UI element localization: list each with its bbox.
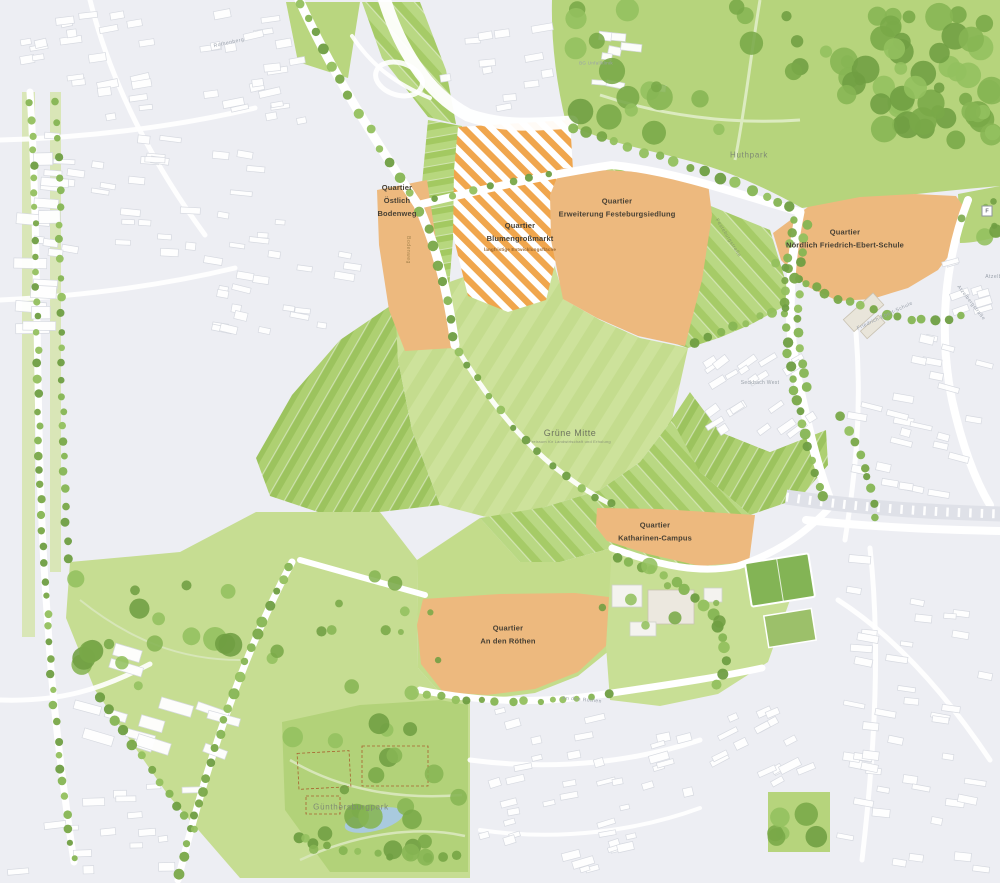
sports-field	[745, 553, 815, 606]
quarter-area-an-den-roethen[interactable]	[417, 593, 609, 695]
map-svg	[0, 0, 1000, 883]
planning-map[interactable]: Quartier Östlich Bodenweg Quartier Blume…	[0, 0, 1000, 883]
railway-corridor	[786, 497, 1000, 514]
sports-court	[764, 608, 816, 647]
